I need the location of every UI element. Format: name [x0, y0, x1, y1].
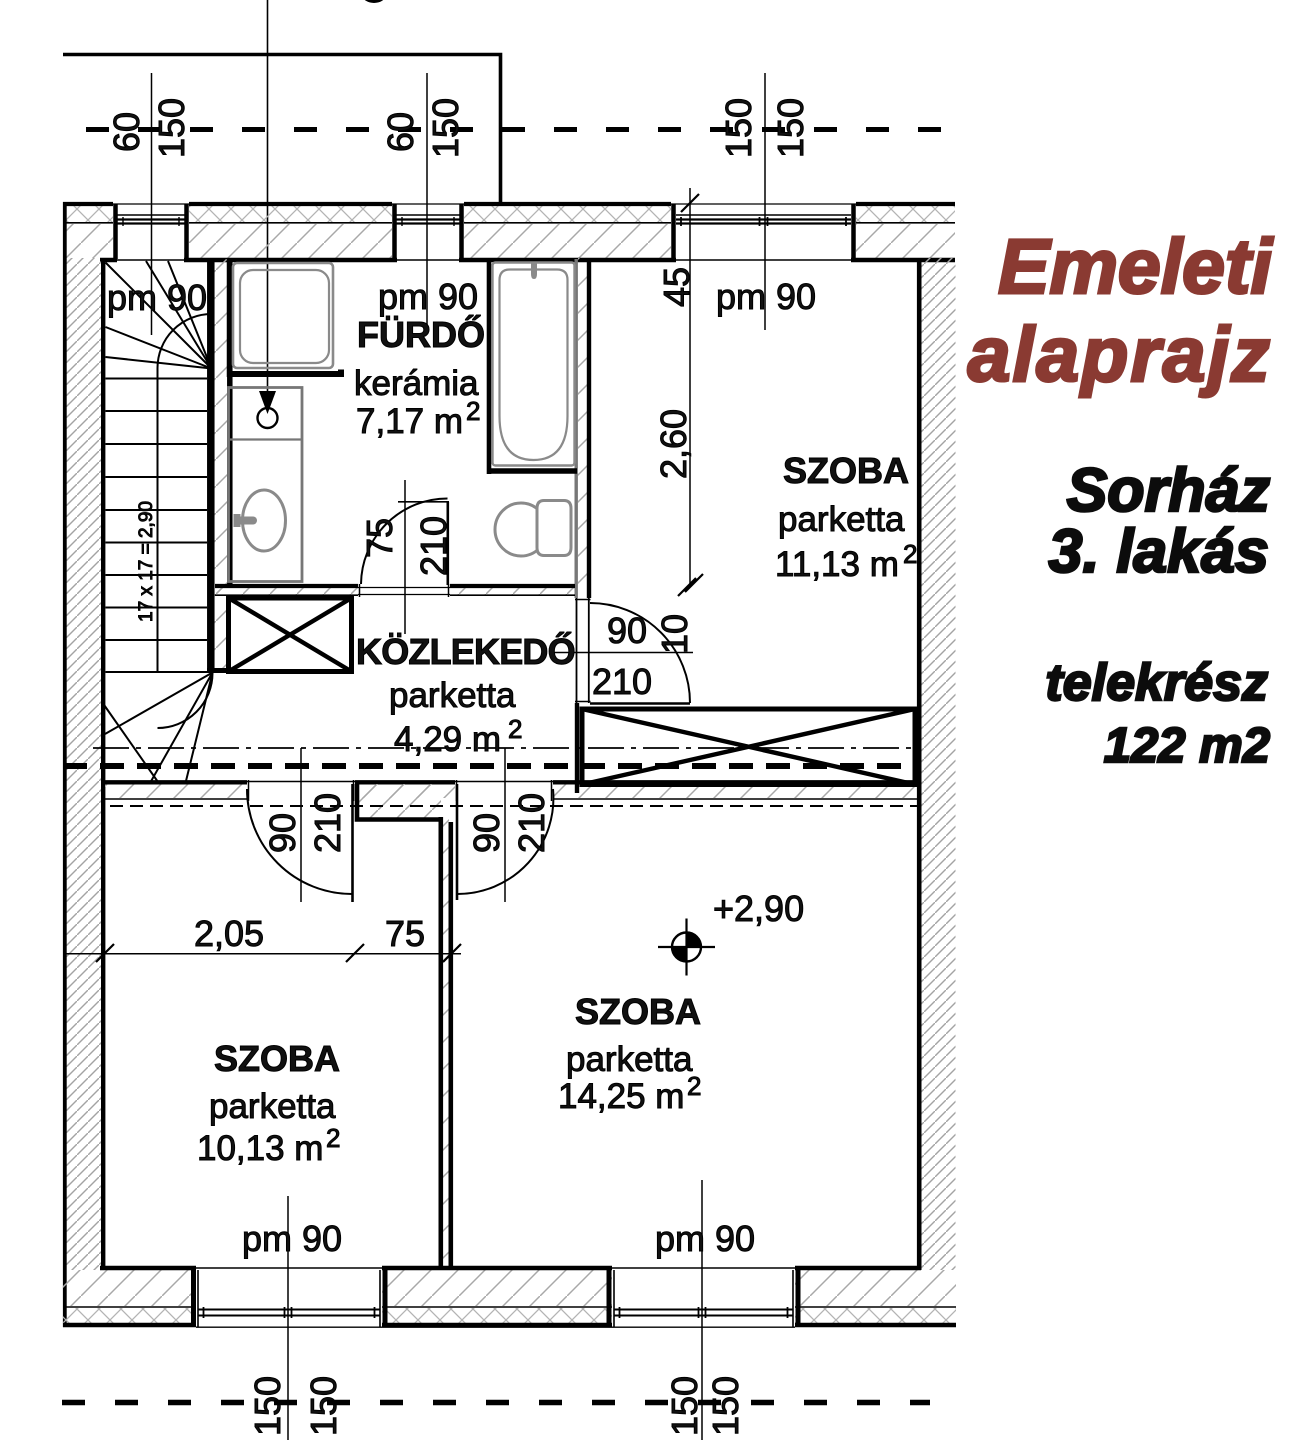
svg-text:2: 2	[903, 539, 917, 569]
svg-text:210: 210	[307, 793, 348, 853]
svg-text:SZOBA: SZOBA	[575, 991, 701, 1032]
svg-text:2,60: 2,60	[653, 409, 694, 479]
svg-text:150: 150	[151, 98, 192, 158]
svg-text:90: 90	[466, 813, 507, 853]
svg-text:KÖZLEKEDŐ: KÖZLEKEDŐ	[356, 630, 575, 672]
svg-text:10,13 m: 10,13 m	[197, 1129, 323, 1168]
svg-text:75: 75	[359, 518, 400, 558]
svg-text:pm 90: pm 90	[655, 1218, 755, 1259]
svg-text:150: 150	[705, 1376, 746, 1436]
svg-text:pm 90: pm 90	[378, 276, 478, 317]
svg-text:2,05: 2,05	[194, 913, 264, 954]
svg-text:parketta: parketta	[389, 676, 516, 715]
svg-text:2: 2	[326, 1123, 340, 1153]
svg-text:parketta: parketta	[209, 1087, 336, 1126]
svg-text:210: 210	[592, 661, 652, 702]
svg-text:Sorház: Sorház	[1067, 456, 1271, 524]
svg-text:60: 60	[106, 112, 147, 152]
svg-text:2: 2	[466, 396, 480, 426]
svg-text:SZOBA: SZOBA	[783, 450, 909, 491]
svg-text:pm 90: pm 90	[716, 276, 816, 317]
svg-text:150: 150	[303, 1376, 344, 1436]
svg-text:14,25 m: 14,25 m	[558, 1077, 684, 1116]
svg-text:11,13 m: 11,13 m	[775, 545, 899, 584]
svg-text:alaprajz: alaprajz	[968, 312, 1272, 398]
svg-text:parketta: parketta	[566, 1040, 693, 1079]
svg-text:90: 90	[607, 610, 647, 651]
svg-text:150: 150	[718, 98, 759, 158]
svg-text:2: 2	[508, 714, 522, 744]
svg-text:pm 90: pm 90	[242, 1218, 342, 1259]
svg-text:90: 90	[262, 813, 303, 853]
svg-text:SZOBA: SZOBA	[214, 1038, 340, 1079]
svg-text:kerámia: kerámia	[354, 364, 479, 403]
svg-text:150: 150	[770, 98, 811, 158]
svg-text:45: 45	[656, 267, 697, 307]
svg-text:150: 150	[425, 98, 466, 158]
svg-text:210: 210	[413, 516, 454, 576]
svg-text:150: 150	[664, 1376, 705, 1436]
svg-text:+2,90: +2,90	[713, 888, 804, 929]
svg-text:60: 60	[380, 112, 421, 152]
svg-text:4,29 m: 4,29 m	[394, 720, 501, 759]
svg-text:parketta: parketta	[778, 500, 905, 539]
svg-text:10: 10	[654, 614, 695, 654]
svg-text:FÜRDŐ: FÜRDŐ	[357, 313, 485, 355]
svg-text:17 x 17 = 2,90: 17 x 17 = 2,90	[136, 501, 157, 622]
svg-text:75: 75	[385, 913, 425, 954]
svg-text:pm 90: pm 90	[107, 277, 207, 318]
svg-text:7,17 m: 7,17 m	[356, 402, 463, 441]
svg-text:3. lakás: 3. lakás	[1049, 517, 1269, 585]
svg-text:122 m2: 122 m2	[1104, 719, 1270, 773]
svg-text:150: 150	[247, 1376, 288, 1436]
svg-text:210: 210	[511, 793, 552, 853]
svg-text:Emeleti: Emeleti	[998, 224, 1274, 310]
svg-text:2: 2	[687, 1071, 701, 1101]
svg-text:telekrész: telekrész	[1045, 654, 1268, 712]
